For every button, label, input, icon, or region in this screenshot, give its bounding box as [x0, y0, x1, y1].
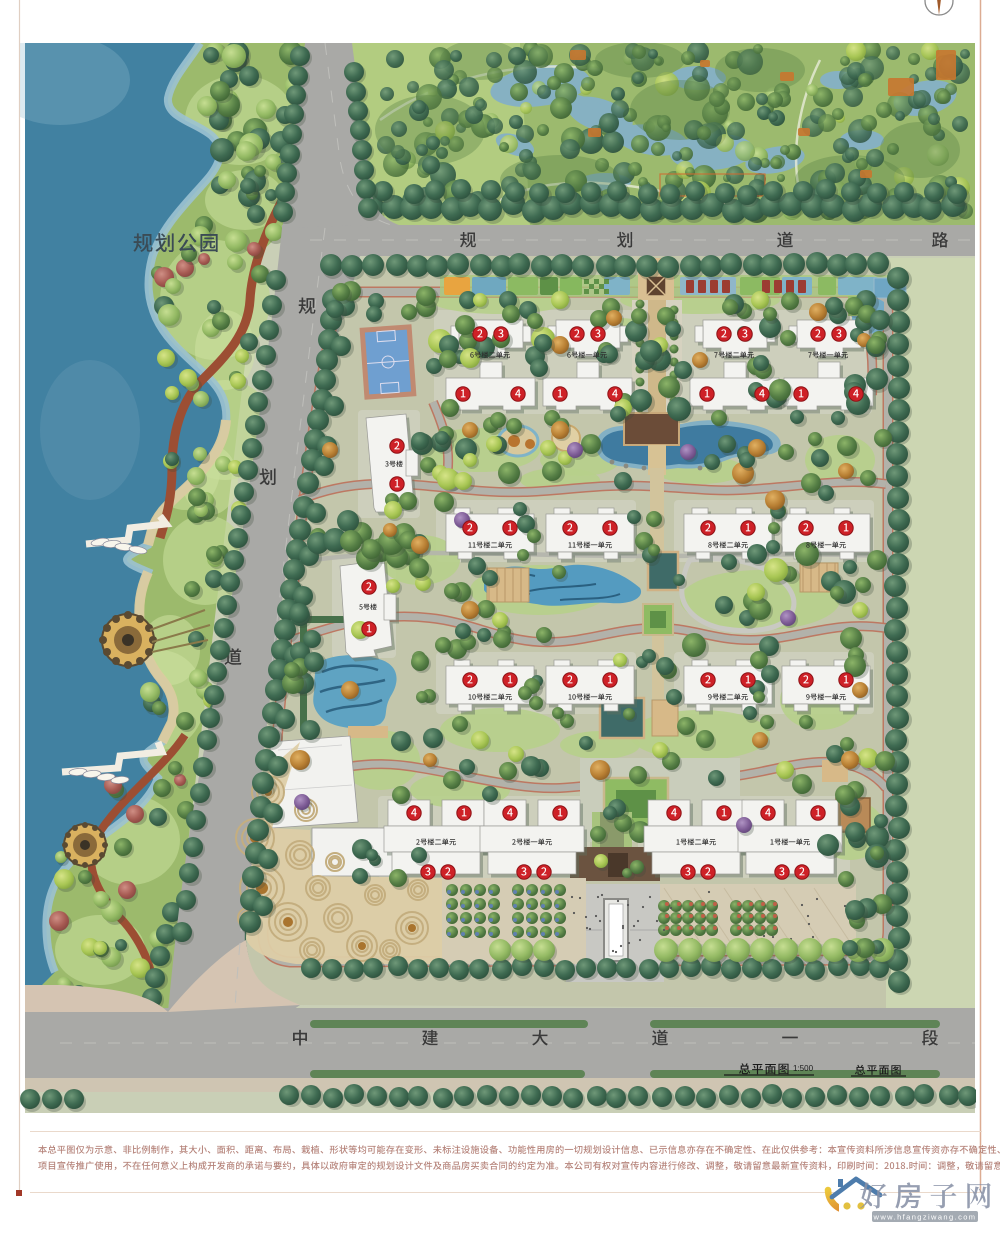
svg-text:1:500: 1:500	[793, 1064, 814, 1073]
svg-text:www.hfangziwang.com: www.hfangziwang.com	[873, 1213, 977, 1222]
